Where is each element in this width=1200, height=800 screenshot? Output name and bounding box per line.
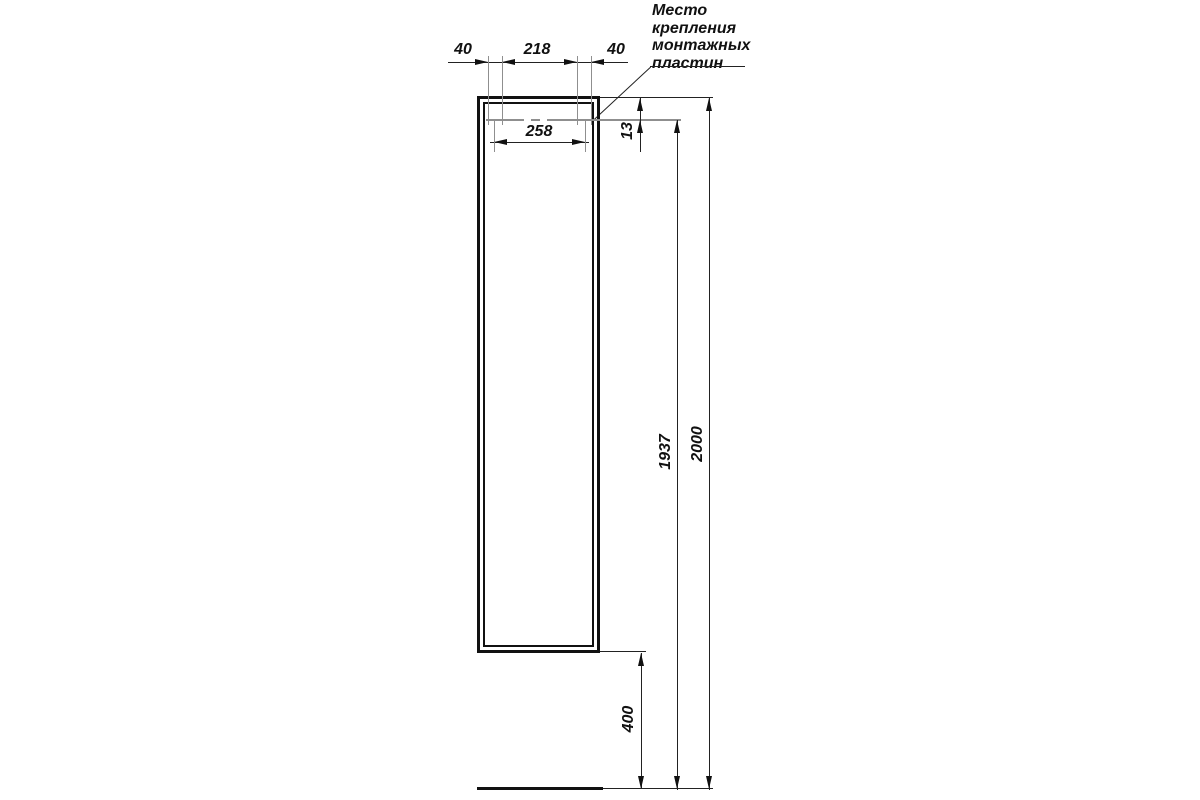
dim-label-218: 218 [507,42,567,58]
mounting-plate-line-left [486,119,524,121]
extension-line-258-right [585,121,586,152]
dim-label-40-left: 40 [433,42,493,58]
arrowhead [591,59,604,65]
extension-line-plate2-right [591,56,592,125]
arrowhead [564,59,577,65]
cabinet-inner-outline [483,102,594,647]
arrowhead [638,653,644,666]
arrowhead [674,120,680,133]
mounting-plate-line-right [547,119,681,121]
dim-label-1937: 1937 [658,420,674,484]
note-line-3: монтажных [652,37,750,55]
mounting-plate-line-center-dash [531,119,540,121]
arrowhead [637,120,643,133]
dim-label-13: 13 [620,111,636,151]
arrowhead [637,98,643,111]
dim-label-2000: 2000 [690,412,706,476]
arrowhead [706,98,712,111]
dim-label-258: 258 [509,124,569,140]
dimension-line-2000 [709,97,710,790]
arrowhead [494,139,507,145]
note-line-4: пластин [652,55,750,73]
dimension-line-1937 [677,120,678,790]
extension-line-plate1-left [488,56,489,125]
dim-label-40-right: 40 [586,42,646,58]
extension-line-cabinet-bottom [600,651,646,652]
extension-line-plate2-left [577,56,578,125]
note-line-1: Место [652,2,750,20]
arrowhead [475,59,488,65]
dimension-line-400 [641,653,642,789]
extension-line-258-left [494,121,495,152]
extension-line-cabinet-top [600,97,713,98]
mounting-plates-note: Место крепления монтажных пластин [652,2,750,72]
leader-horizontal-line [650,66,745,67]
extension-line-plate1-right [502,56,503,125]
floor-line [477,787,603,790]
technical-drawing-canvas: Место крепления монтажных пластин 40 218… [0,0,1200,800]
arrowhead [502,59,515,65]
dim-label-400: 400 [621,691,637,747]
note-line-2: крепления [652,20,750,38]
floor-extension-line [603,788,713,789]
arrowhead [572,139,585,145]
